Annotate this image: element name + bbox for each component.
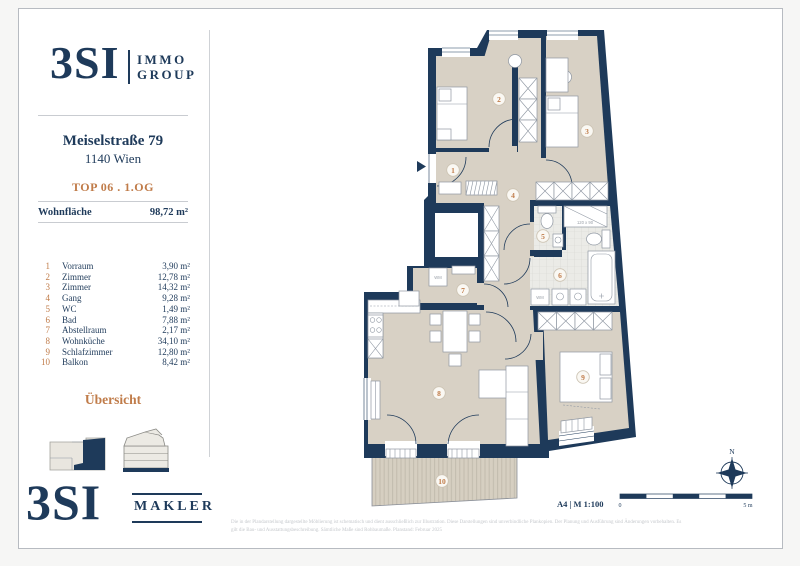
window-room9 [559,417,594,446]
svg-text:5: 5 [541,232,545,241]
entrance-opening [425,154,436,183]
room-label-3: 3 [581,125,594,138]
room-name: Zimmer [50,272,138,283]
room-num: 9 [30,347,50,358]
shoe-rack [466,181,497,195]
washing-machine-bad: WM [531,289,549,305]
room-num: 4 [30,293,50,304]
room-area: 9,28 m² [138,293,190,304]
sidebar-separator-line [209,30,210,457]
shelf-room7 [452,266,475,274]
room-name: Zimmer [50,282,138,293]
room-area: 2,17 m² [138,325,190,336]
room-num: 6 [30,315,50,326]
room-num: 5 [30,304,50,315]
overview-label: Übersicht [23,392,203,408]
room-label-6: 6 [554,269,567,282]
room-name: Abstellraum [50,325,138,336]
room-label-4: 4 [507,189,520,202]
sidebar-rule-3 [38,222,188,223]
closet-corridor [484,206,499,281]
window-corridor-top [489,27,518,40]
compass-north-label: N [729,447,735,456]
room-list-row: 7Abstellraum2,17 m² [30,325,190,336]
scale-zero-label: 0 [619,503,622,509]
closet-room9-row [538,312,612,330]
makler-underline [132,521,202,523]
room-list-row: 10Balkon8,42 m² [30,357,190,368]
room-label-10: 10 [436,475,449,488]
unit-title: TOP 06 . 1.OG [23,180,203,195]
closet-room3-row [536,182,608,200]
brand-logo-top: 3SI [50,40,119,86]
ceiling-lamp-icon [509,55,522,68]
room-num: 8 [30,336,50,347]
washing-machine-room7: WM [429,268,447,286]
shower-size-label: 120 x 90 [577,220,594,225]
svg-text:9: 9 [581,373,585,382]
room-num: 10 [30,357,50,368]
svg-text:6: 6 [558,271,562,280]
room-area: 7,88 m² [138,315,190,326]
shower: 120 x 90 [564,206,607,227]
room-list-row: 5WC1,49 m² [30,304,190,315]
room-label-2: 2 [493,93,506,106]
room-list-row: 2Zimmer12,78 m² [30,272,190,283]
room-name: Vorraum [50,261,138,272]
footer-disclaimer-line2: gilt die Bau- und Ausstattungsbeschreibu… [231,527,442,535]
room-name: Gang [50,293,138,304]
overview-drawings [46,424,178,472]
floor-plan: WM [340,20,780,516]
closet-corridor-upper [519,78,537,142]
bed-room2 [437,87,467,140]
footer-disclaimer-line1: Die in der Plandarstellung dargestellte … [231,519,681,527]
floorplan-document: { "colors": {"navy": "#1e3a5a", "orange"… [0,0,800,566]
sidebar-rule-2 [38,201,188,202]
building-elevation [123,429,169,472]
room-label-1: 1 [447,164,460,177]
hand-basin-wc [553,234,563,247]
svg-text:2: 2 [497,95,501,104]
bathtub [588,251,615,304]
room-list-row: 8Wohnküche34,10 m² [30,336,190,347]
svg-text:WM: WM [434,275,442,280]
room-name: Bad [50,315,138,326]
room-label-8: 8 [433,387,446,400]
room-list-row: 9Schlafzimmer12,80 m² [30,347,190,358]
elevation-highlight-floor [123,468,169,472]
svg-text:3: 3 [585,127,589,136]
room-list-row: 4Gang9,28 m² [30,293,190,304]
svg-text:8: 8 [437,389,441,398]
brand-3si-bottom-text: 3SI [26,474,101,530]
room-name: Wohnküche [50,336,138,347]
room-area: 1,49 m² [138,304,190,315]
room-num: 7 [30,325,50,336]
brand-3si-text: 3SI [50,37,119,88]
brand-immo-group: IMMO GROUP [137,52,196,82]
room-list-row: 1Vorraum3,90 m² [30,261,190,272]
building-footprint-plan [50,438,105,470]
window-room3 [547,27,578,40]
room-num: 2 [30,272,50,283]
svg-text:7: 7 [461,286,465,295]
makler-overline [132,493,202,495]
window-room2 [442,44,470,57]
makler-text: MAKLER [134,499,215,515]
address-city: 1140 Wien [23,151,203,167]
scale-max-label: 5 m [743,503,753,509]
scale-bar: A4 | M 1:100 0 5 m [557,494,753,509]
hall-cabinet [439,182,461,194]
room-area: 34,10 m² [138,336,190,347]
room-label-7: 7 [457,284,470,297]
room-label-5: 5 [537,230,550,243]
room-area: 8,42 m² [138,357,190,368]
address-street: Meiselstraße 79 [23,133,203,150]
balcony-door-left [385,441,417,458]
room-label-9: 9 [577,371,590,384]
room-list: 1Vorraum3,90 m² 2Zimmer12,78 m² 3Zimmer1… [30,261,190,368]
balcony-door-right [447,441,480,458]
stairwell-void [435,213,478,257]
room-name: Schlafzimmer [50,347,138,358]
svg-text:10: 10 [438,477,446,486]
brand-group-text: GROUP [137,67,196,82]
svg-text:4: 4 [511,191,515,200]
room-name: Balkon [50,357,138,368]
window-room8-left [361,378,380,420]
room-area: 12,80 m² [138,347,190,358]
room-list-row: 3Zimmer14,32 m² [30,282,190,293]
room-num: 1 [30,261,50,272]
room-area: 14,32 m² [138,282,190,293]
room-area: 12,78 m² [138,272,190,283]
room-list-row: 6Bad7,88 m² [30,315,190,326]
room-area: 3,90 m² [138,261,190,272]
sidebar-rule-1 [38,115,188,116]
living-area-label: Wohnfläche [38,207,92,218]
brand-immo-text: IMMO [137,52,196,67]
brand-divider-line [128,50,130,84]
brand-logo-bottom: 3SI [26,477,101,527]
room-name: WC [50,304,138,315]
room-num: 3 [30,282,50,293]
entrance-arrow-icon [417,161,426,172]
svg-text:1: 1 [451,166,455,175]
svg-text:WM: WM [536,295,544,300]
compass-rose-icon: N [716,447,748,489]
bed-room3 [546,96,578,147]
dresser-room3 [546,58,568,92]
living-area-value: 98,72 m² [108,207,188,218]
scale-format-label: A4 | M 1:100 [557,499,604,509]
